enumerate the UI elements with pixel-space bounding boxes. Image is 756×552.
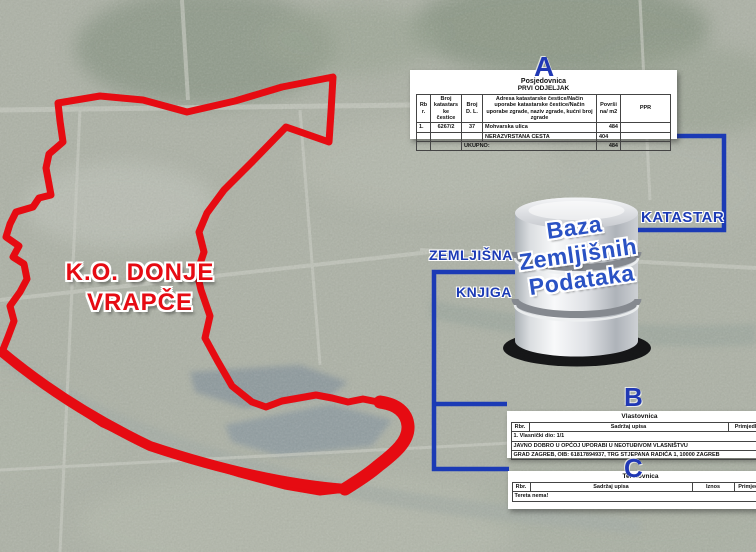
label-zemljisna: ZEMLJIŠNA	[429, 247, 513, 263]
doc-b-header-row: Rbr. Sadržaj upisa Primjedba	[511, 423, 756, 432]
region-label-line2: VRAPČE	[40, 288, 240, 318]
document-vlastovnica: Vlastovnica Rbr. Sadržaj upisa Primjedba…	[507, 411, 756, 458]
doc-a-table: Rbr. Broj katastarske čestice Broj D. L.…	[416, 94, 671, 151]
doc-c-row-1: Tereta nema!	[512, 492, 756, 501]
infographic-canvas: K.O. DONJE VRAPČE Baza Zemljišnih Podata…	[0, 0, 756, 552]
connector-zemljisna-knjiga	[434, 272, 516, 469]
region-label-ko-donje-vrapce: K.O. DONJE VRAPČE	[40, 258, 240, 318]
doc-a-col-broj-cestice: Broj katastarske čestice	[431, 95, 462, 123]
doc-b-row-1: 1. Vlasnički dio: 1/1	[511, 432, 756, 441]
doc-b-row-2: JAVNO DOBRO U OPĆOJ UPORABI U NEOTUĐIVOM…	[511, 441, 756, 450]
marker-a: A	[534, 53, 554, 81]
doc-c-col-primjedba: Primjedba	[734, 483, 756, 492]
doc-a-header-row: Rbr. Broj katastarske čestice Broj D. L.…	[417, 95, 671, 123]
doc-b-col-sadrzaj: Sadržaj upisa	[529, 423, 728, 432]
marker-b: B	[624, 384, 643, 410]
doc-c-header-row: Rbr. Sadržaj upisa Iznos Primjedba	[512, 483, 756, 492]
doc-a-col-povrsina: Površina/ m2	[597, 95, 621, 123]
marker-c: C	[624, 455, 643, 481]
doc-c-col-iznos: Iznos	[692, 483, 734, 492]
doc-a-col-ppr: PPR	[621, 95, 671, 123]
doc-a-row-1: 1. 6267/2 37 Mohvarska ulica 484	[417, 123, 671, 132]
label-katastar: KATASTAR	[641, 209, 724, 226]
doc-a-row-2: NERAZVRSTANA CESTA 404	[417, 132, 671, 141]
doc-a-col-rbr: Rbr.	[417, 95, 431, 123]
doc-c-table: Rbr. Sadržaj upisa Iznos Primjedba Teret…	[512, 482, 756, 502]
doc-a-subtitle: PRVI ODJELJAK	[410, 85, 677, 92]
label-knjiga: KNJIGA	[456, 284, 512, 300]
region-label-line1: K.O. DONJE	[40, 258, 240, 288]
doc-a-col-broj-dl: Broj D. L.	[462, 95, 483, 123]
doc-c-col-sadrzaj: Sadržaj upisa	[530, 483, 692, 492]
doc-a-row-total: UKUPNO: 484	[417, 141, 671, 150]
doc-b-col-primjedba: Primjedba	[728, 423, 756, 432]
doc-c-col-rbr: Rbr.	[512, 483, 530, 492]
doc-a-col-adresa: Adresa katastarske čestice/Način uporabe…	[483, 95, 597, 123]
doc-b-title: Vlastovnica	[507, 413, 756, 420]
doc-b-col-rbr: Rbr.	[511, 423, 529, 432]
